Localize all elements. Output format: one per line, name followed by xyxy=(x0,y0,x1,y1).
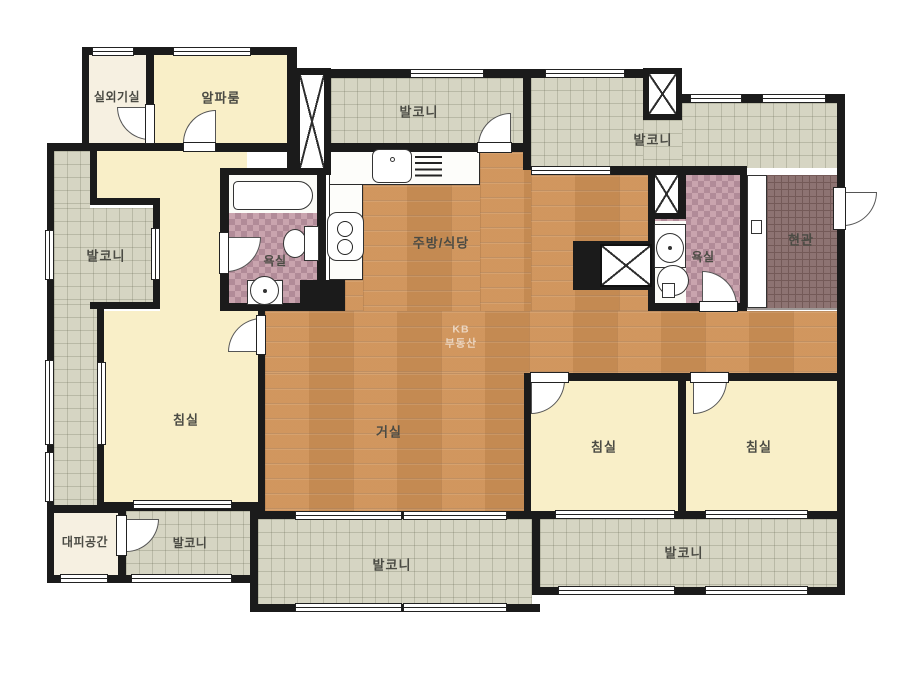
room-bedroom-left-floor xyxy=(160,201,220,311)
stove-icon xyxy=(415,156,442,181)
wall xyxy=(250,505,258,612)
room-label-balcony-top-right: 발코니 xyxy=(634,134,673,147)
floorplan: 실외기실 알파룸 발코니 발코니 발코니 욕실 주방/식당 욕실 현관 침실 거… xyxy=(0,0,923,676)
kitchen-sink-icon xyxy=(372,149,412,183)
window xyxy=(133,500,232,509)
wall xyxy=(837,230,845,595)
kitchen-dining-floor xyxy=(345,280,363,311)
sink-drain-icon xyxy=(263,289,267,293)
window xyxy=(295,603,402,612)
washer-dial-icon xyxy=(337,239,353,255)
balcony-left-floor xyxy=(54,151,90,208)
wall xyxy=(146,55,154,105)
wall xyxy=(82,143,183,151)
room-label-kitchen-dining: 주방/식당 xyxy=(413,237,469,250)
window xyxy=(97,362,106,445)
wall xyxy=(610,166,747,175)
door-frame xyxy=(145,104,155,144)
room-label-balcony-bottom-left: 발코니 xyxy=(173,537,208,549)
window xyxy=(762,94,826,103)
kb-watermark: KB 부동산 xyxy=(445,323,477,350)
balcony-left-floor xyxy=(54,304,97,505)
room-label-bathroom-left: 욕실 xyxy=(263,255,286,267)
washer-dial-icon xyxy=(337,221,353,237)
window xyxy=(295,511,402,520)
wall xyxy=(512,143,523,152)
balcony-top-right-floor xyxy=(531,77,643,168)
room-label-bedroom-right: 침실 xyxy=(746,441,772,454)
door-frame xyxy=(690,372,729,383)
window xyxy=(151,228,160,280)
door-frame xyxy=(183,142,216,152)
window xyxy=(705,586,808,595)
window xyxy=(705,510,808,519)
wall xyxy=(524,373,531,519)
door-frame xyxy=(530,372,569,383)
door-frame xyxy=(256,315,266,355)
window xyxy=(410,69,484,78)
window xyxy=(45,452,54,502)
room-label-bedroom-left: 침실 xyxy=(173,414,199,427)
window xyxy=(690,94,742,103)
window xyxy=(558,586,675,595)
room-label-balcony-left: 발코니 xyxy=(87,250,126,263)
bathtub-icon xyxy=(233,181,313,210)
door-frame xyxy=(699,301,738,312)
window xyxy=(45,360,54,445)
wall xyxy=(216,143,478,152)
shaft-x-icon xyxy=(655,175,678,213)
wall xyxy=(524,373,845,381)
wall xyxy=(678,381,686,519)
wall xyxy=(837,94,845,188)
room-label-bedroom-center: 침실 xyxy=(591,441,617,454)
wall xyxy=(740,168,747,311)
toilet-icon xyxy=(662,283,675,298)
toilet-icon xyxy=(304,226,319,261)
wall xyxy=(90,198,160,205)
room-label-balcony-top: 발코니 xyxy=(400,106,439,119)
window xyxy=(131,574,232,583)
room-label-evacuation-space: 대피공간 xyxy=(62,536,108,548)
kitchen-sink-drain-icon xyxy=(390,157,395,162)
wall xyxy=(523,69,531,170)
wall xyxy=(648,303,700,311)
shaft-x-icon xyxy=(293,68,331,175)
window xyxy=(403,603,507,612)
sink-drain-icon xyxy=(668,246,672,250)
door-frame xyxy=(219,232,229,274)
room-label-balcony-bottom-right: 발코니 xyxy=(665,547,704,560)
window xyxy=(173,47,251,56)
room-label-balcony-bottom: 발코니 xyxy=(373,559,412,572)
entrance-closet xyxy=(747,175,767,308)
shaft-x-icon xyxy=(600,244,652,287)
wall xyxy=(738,303,747,311)
kb-watermark-line2: 부동산 xyxy=(445,337,477,351)
window xyxy=(60,574,108,583)
room-label-outdoor-unit: 실외기실 xyxy=(94,91,140,103)
closet-handle-icon xyxy=(751,220,762,234)
kb-watermark-line1: KB xyxy=(445,323,477,337)
shaft-x-icon xyxy=(643,68,682,120)
hallway-floor xyxy=(265,311,837,373)
door-frame xyxy=(477,142,512,153)
bathroom-right-floor xyxy=(686,175,740,219)
window xyxy=(531,166,611,175)
door-frame xyxy=(116,515,127,556)
wall xyxy=(300,280,345,311)
wall xyxy=(220,168,229,233)
balcony-top-right-floor xyxy=(682,103,837,168)
window xyxy=(555,510,675,519)
entrance-threshold xyxy=(747,308,837,310)
window xyxy=(545,69,625,78)
wall xyxy=(258,354,265,511)
room-label-bathroom-right: 욕실 xyxy=(691,251,714,263)
room-bedroom-left-floor xyxy=(97,151,220,201)
window xyxy=(403,511,507,520)
wall xyxy=(532,511,540,595)
wall xyxy=(118,554,126,575)
room-label-alpha-room: 알파룸 xyxy=(202,92,241,105)
window xyxy=(92,47,134,56)
door-frame xyxy=(833,187,846,230)
door-swing xyxy=(843,192,877,226)
wall xyxy=(90,151,97,205)
window xyxy=(45,230,54,280)
living-room-floor xyxy=(265,373,524,511)
room-label-entrance: 현관 xyxy=(788,234,814,247)
room-label-living-room: 거실 xyxy=(376,426,402,439)
wall xyxy=(82,47,89,151)
kitchen-dining-floor xyxy=(480,152,531,311)
wall xyxy=(47,505,126,513)
